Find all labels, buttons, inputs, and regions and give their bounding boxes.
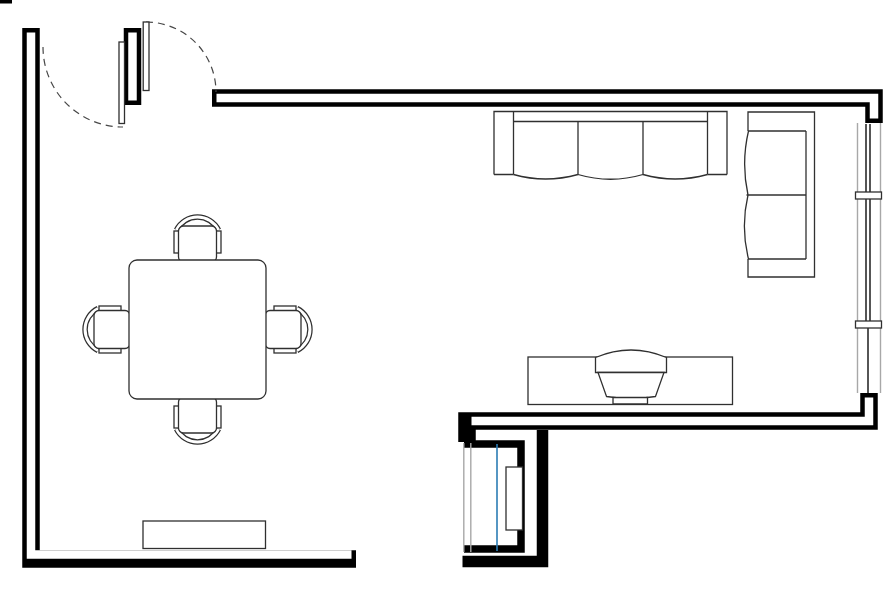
top-wall-core [217, 98, 875, 119]
dining-chair-top[interactable] [174, 217, 221, 262]
sideboard[interactable] [143, 521, 266, 549]
loveseat[interactable] [744, 112, 814, 277]
corner-mark [0, 0, 12, 4]
dining-chair-bottom[interactable] [174, 397, 221, 442]
closet[interactable] [464, 443, 523, 552]
door-swing-arc-right [146, 22, 216, 92]
right-window-glass [866, 124, 870, 393]
floor-plan-canvas [0, 0, 891, 592]
tv-stand[interactable] [528, 350, 733, 405]
closet-cabinet[interactable] [506, 467, 523, 530]
tv-screen [596, 350, 667, 373]
loveseat-cushion-fronts [744, 131, 748, 259]
dining-chair-right[interactable] [265, 306, 310, 353]
door-swing-arc-left [43, 47, 123, 127]
dining-set[interactable] [85, 217, 310, 442]
square-dining-table[interactable] [129, 260, 266, 399]
tv-base [613, 398, 648, 405]
door-leaf-right[interactable] [143, 22, 149, 91]
right-window-mullion [856, 192, 882, 199]
tv-body [598, 373, 664, 399]
sofa-cushion-dividers [578, 122, 643, 175]
door-leaf-left[interactable] [119, 42, 125, 124]
right-window-mullion [856, 321, 882, 328]
bottom-right-outer-wall [463, 430, 543, 562]
three-seat-sofa[interactable] [494, 112, 727, 180]
dining-chair-left[interactable] [85, 306, 130, 353]
sofa-cushion-fronts [514, 175, 708, 180]
right-window[interactable] [856, 123, 882, 393]
